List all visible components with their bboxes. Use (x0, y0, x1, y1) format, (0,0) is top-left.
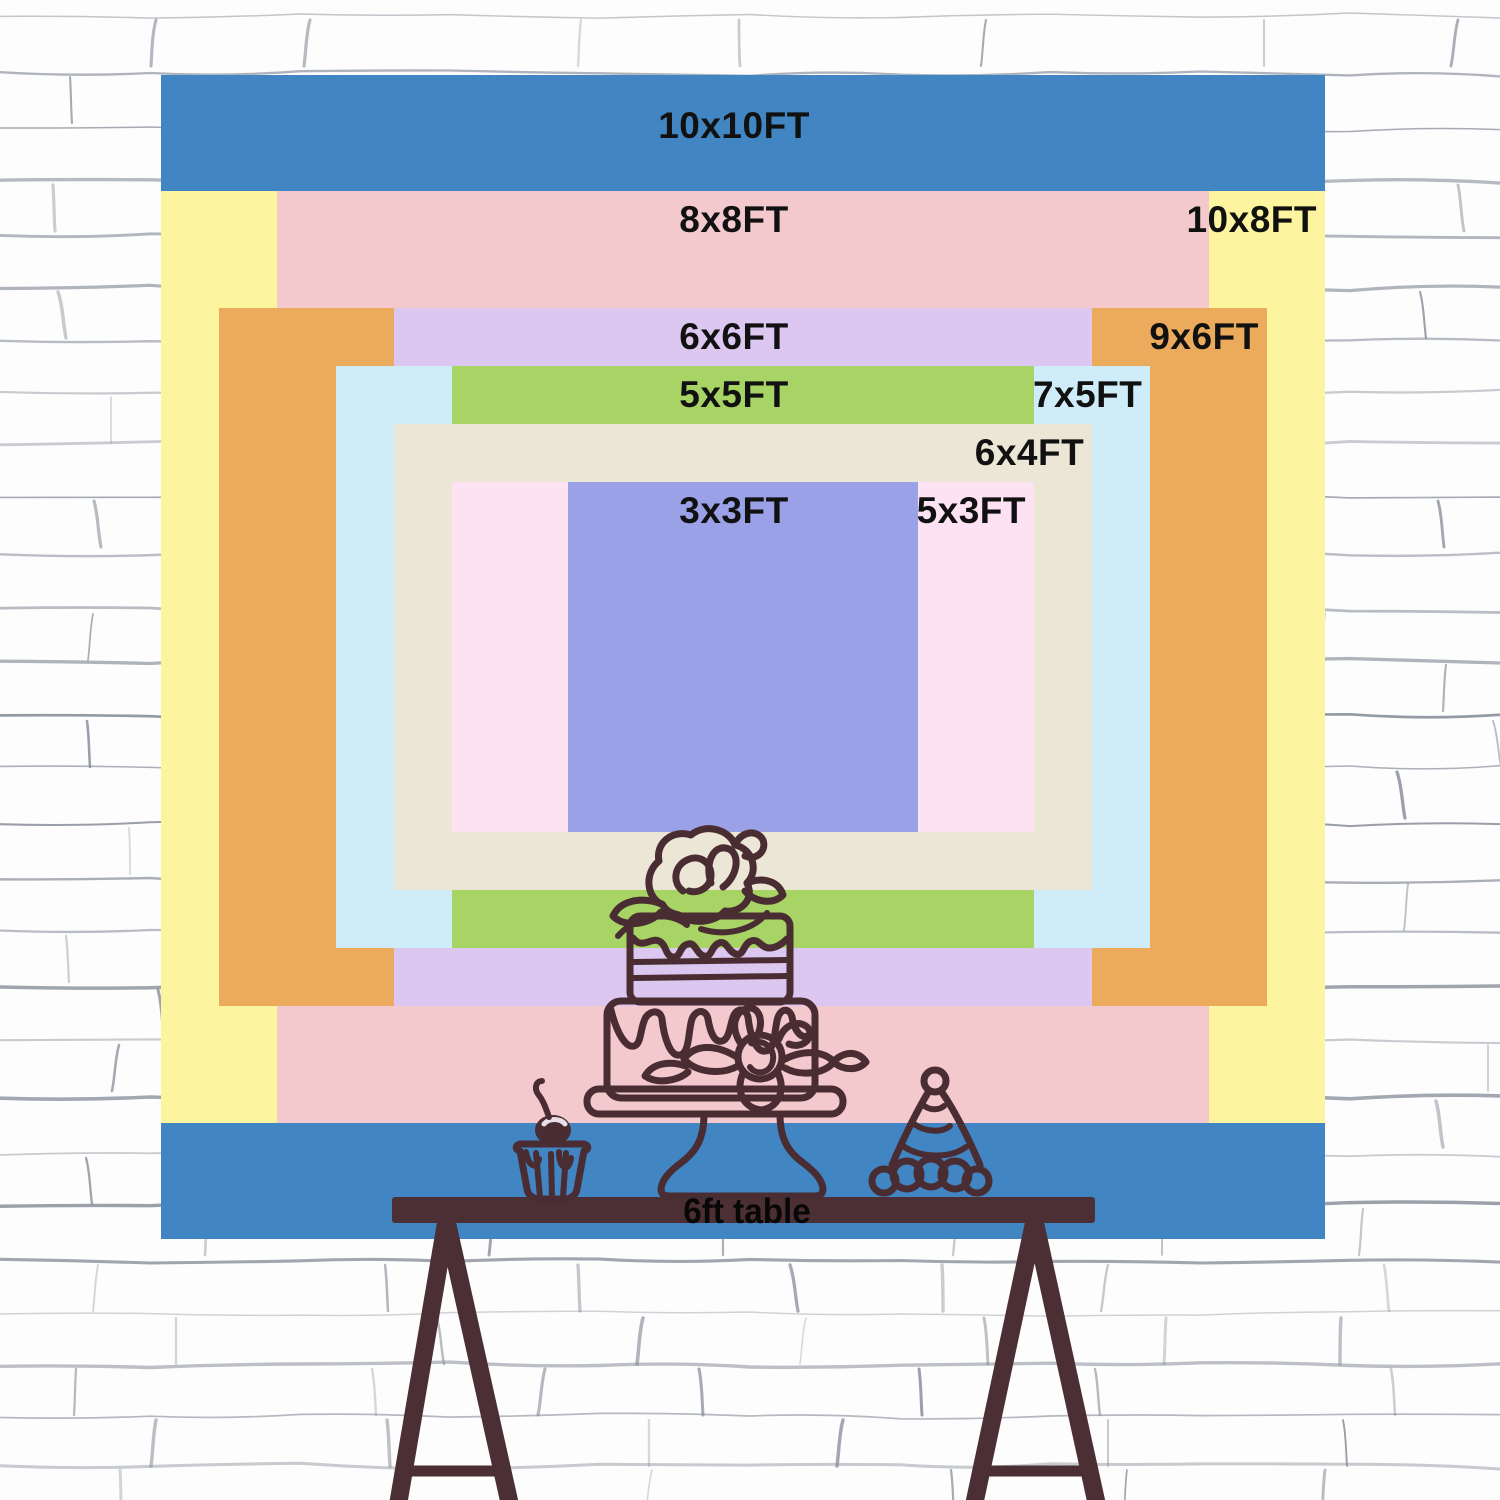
table-leg (447, 1223, 510, 1500)
line-art-layer (0, 0, 1500, 1500)
table-leg (398, 1223, 446, 1500)
table-leg (1035, 1223, 1097, 1500)
cupcake-illustration (516, 1081, 588, 1199)
backdrop-size-chart: 10x10FT10x8FT8x8FT9x6FT6x6FT7x5FT5x5FT6x… (0, 0, 1500, 1500)
cake-illustration (587, 829, 866, 1196)
table-size-label: 6ft table (683, 1192, 810, 1232)
party-hat-illustration (872, 1070, 989, 1193)
trestle-table-illustration (392, 1197, 1097, 1500)
table-leg (974, 1223, 1034, 1500)
